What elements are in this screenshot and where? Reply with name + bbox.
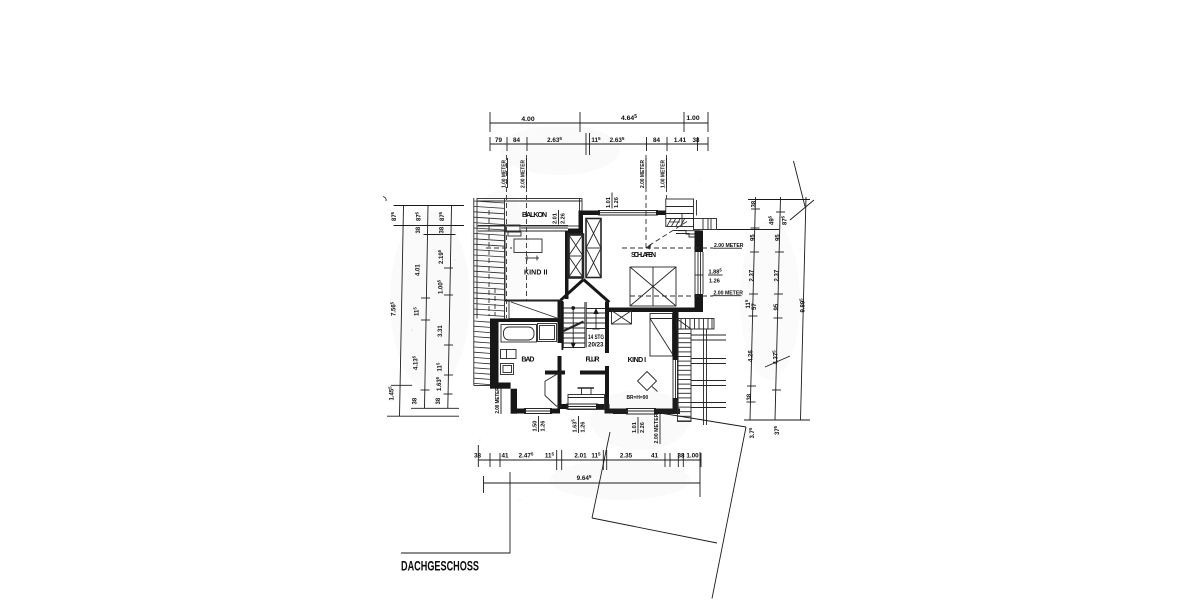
svg-text:1.26: 1.26 [541,421,547,432]
svg-text:4.00: 4.00 [521,116,534,123]
svg-text:1.00: 1.00 [686,453,699,460]
svg-text:FLUR: FLUR [586,357,600,364]
svg-text:38: 38 [474,453,482,460]
svg-text:KIND I: KIND I [628,357,647,364]
svg-text:38: 38 [692,137,700,144]
svg-text:2.01: 2.01 [553,213,559,224]
svg-text:38: 38 [413,397,419,404]
svg-text:1.26: 1.26 [581,422,587,433]
svg-text:SCHLAFEN: SCHLAFEN [631,252,656,259]
svg-text:1.41: 1.41 [674,137,687,144]
svg-text:2.26: 2.26 [561,213,567,224]
svg-text:1.50: 1.50 [533,421,539,432]
svg-text:1.01: 1.01 [606,197,612,208]
svg-text:1.26: 1.26 [614,197,620,208]
svg-text:BAD: BAD [521,357,534,364]
svg-text:20/23: 20/23 [588,343,604,349]
svg-text:DACHGESCHOSS: DACHGESCHOSS [401,559,479,574]
svg-text:38: 38 [747,393,753,400]
svg-text:2.35: 2.35 [620,453,633,460]
svg-text:1.00 METER: 1.00 METER [661,159,667,188]
svg-text:79: 79 [495,137,503,144]
svg-text:38: 38 [752,200,758,207]
svg-text:14 STG: 14 STG [588,335,604,341]
svg-text:41: 41 [651,453,659,460]
svg-text:1.00 METER: 1.00 METER [502,159,508,188]
svg-text:38: 38 [436,397,442,404]
svg-text:BALKON: BALKON [522,212,547,219]
svg-text:41: 41 [501,453,509,460]
svg-text:2.00 METER: 2.00 METER [640,159,646,188]
svg-text:38: 38 [677,453,685,460]
svg-text:84: 84 [653,137,661,144]
svg-text:2.00 METER: 2.00 METER [495,388,501,414]
svg-text:1.26: 1.26 [709,279,720,285]
svg-text:1.00: 1.00 [686,115,699,122]
svg-text:2.01: 2.01 [574,453,587,460]
